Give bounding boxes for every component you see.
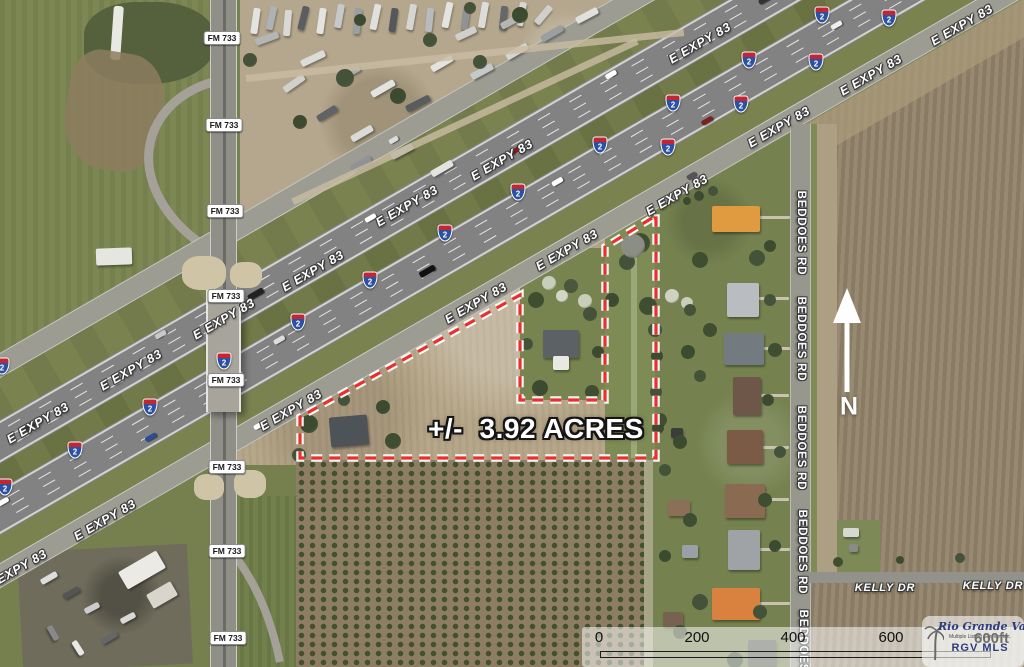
tree: [708, 186, 718, 196]
interstate-shield-number: 2: [814, 60, 818, 70]
field-edge-strip: [817, 124, 837, 572]
tree: [703, 323, 717, 337]
scale-tick: 0: [595, 629, 603, 646]
tree: [659, 464, 671, 476]
house-roof: [724, 333, 764, 365]
tree: [694, 191, 704, 201]
house-roof: [727, 430, 763, 464]
tree: [243, 53, 257, 67]
sand-patch: [194, 474, 224, 500]
house-roof: [712, 206, 760, 232]
tree: [648, 323, 662, 337]
sand-patch: [234, 470, 266, 498]
tree: [769, 540, 781, 552]
house-roof: [329, 414, 369, 447]
tree: [955, 553, 965, 563]
farm-road-label: FM 733: [210, 631, 247, 645]
beddoes-road-label: BEDDOES RD: [796, 510, 808, 595]
house-roof: [553, 356, 569, 370]
interstate-shield-number: 2: [443, 231, 447, 241]
tree: [585, 385, 599, 399]
driveway: [758, 216, 790, 219]
tree: [639, 297, 657, 315]
tree: [659, 550, 671, 562]
tree: [338, 394, 350, 406]
tree: [758, 493, 772, 507]
scale-unit-label: 600ft: [974, 630, 1009, 647]
farm-road-label: FM 733: [208, 289, 245, 303]
interstate-shield-number: 2: [296, 320, 300, 330]
farm-road-label: FM 733: [208, 373, 245, 387]
interstate-shield-number: 2: [73, 448, 77, 458]
interstate-shield-number: 2: [148, 405, 152, 415]
driveway: [760, 602, 790, 605]
beddoes-road-label: BEDDOES RD: [795, 406, 807, 491]
interstate-shield-number: 2: [820, 13, 824, 23]
tree: [354, 14, 366, 26]
kelly-drive-label: KELLY DR: [855, 582, 915, 594]
tree: [653, 413, 667, 427]
tree: [833, 557, 843, 567]
tree: [681, 345, 695, 359]
house-roof: [728, 530, 760, 570]
tree: [650, 386, 662, 398]
kelly-drive-label: KELLY DR: [963, 580, 1023, 592]
tree: [749, 250, 765, 266]
tree: [694, 370, 706, 382]
tree: [336, 69, 354, 87]
house-roof: [96, 247, 133, 265]
tree: [464, 2, 476, 14]
house-roof: [543, 330, 579, 358]
orchard-west: [240, 496, 296, 667]
tree: [578, 294, 592, 308]
interstate-shield-number: 2: [739, 102, 743, 112]
tree: [683, 513, 697, 527]
tree: [542, 276, 556, 290]
interstate-shield-number: 2: [368, 278, 372, 288]
tree: [764, 240, 776, 252]
farm-road-label: FM 733: [206, 118, 243, 132]
acreage-label: +/- 3.92 ACRES: [428, 413, 644, 445]
sand-patch: [182, 256, 226, 290]
interstate-shield-number: 2: [671, 101, 675, 111]
tree: [300, 415, 318, 433]
tree: [684, 304, 696, 316]
north-label: N: [840, 393, 858, 422]
tree: [774, 446, 786, 458]
farm-road-label: FM 733: [209, 544, 246, 558]
tree: [293, 115, 307, 129]
tree: [512, 7, 528, 23]
beddoes-road-label: BEDDOES RD: [795, 297, 807, 382]
house-roof: [843, 528, 859, 537]
interstate-shield-number: 2: [666, 145, 670, 155]
interstate-shield-number: 2: [3, 485, 7, 495]
tree: [473, 55, 487, 69]
tree: [532, 380, 548, 396]
farm-road-label: FM 733: [209, 460, 246, 474]
tree: [521, 338, 533, 350]
interstate-shield-number: 2: [222, 359, 226, 369]
scale-tick: 200: [684, 629, 709, 646]
tree: [764, 294, 776, 306]
interstate-shield-number: 2: [516, 190, 520, 200]
tree: [592, 346, 604, 358]
beddoes-road-label: BEDDOES RD: [795, 191, 807, 276]
tree: [423, 33, 437, 47]
tree: [673, 435, 687, 449]
farm-road-label: FM 733: [204, 31, 241, 45]
tree: [768, 343, 782, 357]
sand-patch: [230, 262, 262, 288]
tree: [583, 307, 597, 321]
tree: [621, 234, 645, 258]
tree: [665, 289, 679, 303]
tree: [528, 292, 544, 308]
tree: [385, 433, 401, 449]
tree: [762, 394, 774, 406]
tree: [292, 448, 306, 462]
house-roof: [682, 545, 698, 558]
tree: [556, 290, 568, 302]
house-roof: [849, 544, 858, 552]
interstate-shield-number: 2: [887, 16, 891, 26]
scale-tick: 600: [878, 629, 903, 646]
farm-road-label: FM 733: [207, 204, 244, 218]
house-roof: [727, 283, 759, 317]
house-roof: [733, 377, 761, 415]
tree: [605, 293, 619, 307]
tree: [896, 556, 904, 564]
tree: [651, 350, 663, 362]
tree: [390, 88, 406, 104]
tree: [692, 252, 708, 268]
interstate-shield-number: 2: [747, 58, 751, 68]
interstate-shield-number: 2: [0, 364, 4, 374]
scale-tick: 400: [780, 629, 805, 646]
tree: [753, 605, 767, 619]
map-canvas: +/- 3.92 ACRES N 0 200 400 600 Rio Grand…: [0, 0, 1024, 667]
interstate-shield-number: 2: [598, 143, 602, 153]
tree: [692, 594, 708, 610]
tree: [376, 400, 390, 414]
